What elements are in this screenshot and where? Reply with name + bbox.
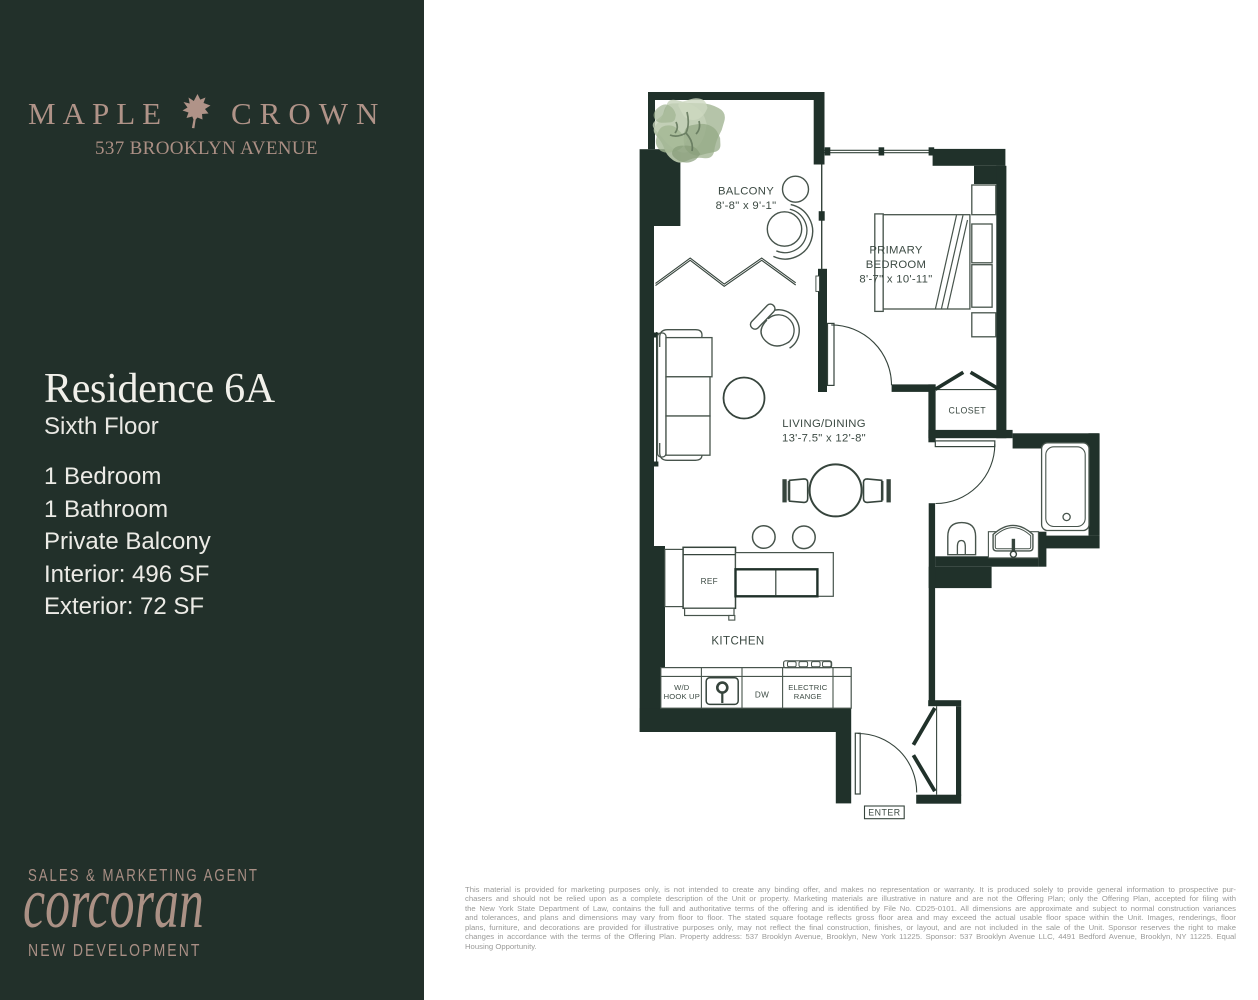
svg-text:W/D: W/D	[674, 683, 690, 692]
svg-text:HOOK UP: HOOK UP	[664, 692, 700, 701]
svg-text:REF: REF	[701, 577, 718, 586]
svg-text:PRIMARY: PRIMARY	[869, 245, 923, 257]
svg-text:ENTER: ENTER	[868, 808, 900, 818]
svg-text:CLOSET: CLOSET	[948, 406, 986, 416]
svg-text:BEDROOM: BEDROOM	[866, 259, 926, 271]
svg-text:KITCHEN: KITCHEN	[711, 636, 764, 648]
svg-text:13'-7.5" x 12'-8": 13'-7.5" x 12'-8"	[782, 433, 866, 445]
svg-text:RANGE: RANGE	[794, 692, 822, 701]
svg-text:8'-7" x 10'-11": 8'-7" x 10'-11"	[859, 274, 932, 286]
svg-text:BALCONY: BALCONY	[718, 186, 774, 198]
svg-text:8'-8" x 9'-1": 8'-8" x 9'-1"	[716, 200, 777, 212]
svg-text:ELECTRIC: ELECTRIC	[788, 683, 827, 692]
svg-text:LIVING/DINING: LIVING/DINING	[782, 418, 866, 430]
svg-text:DW: DW	[755, 690, 769, 699]
